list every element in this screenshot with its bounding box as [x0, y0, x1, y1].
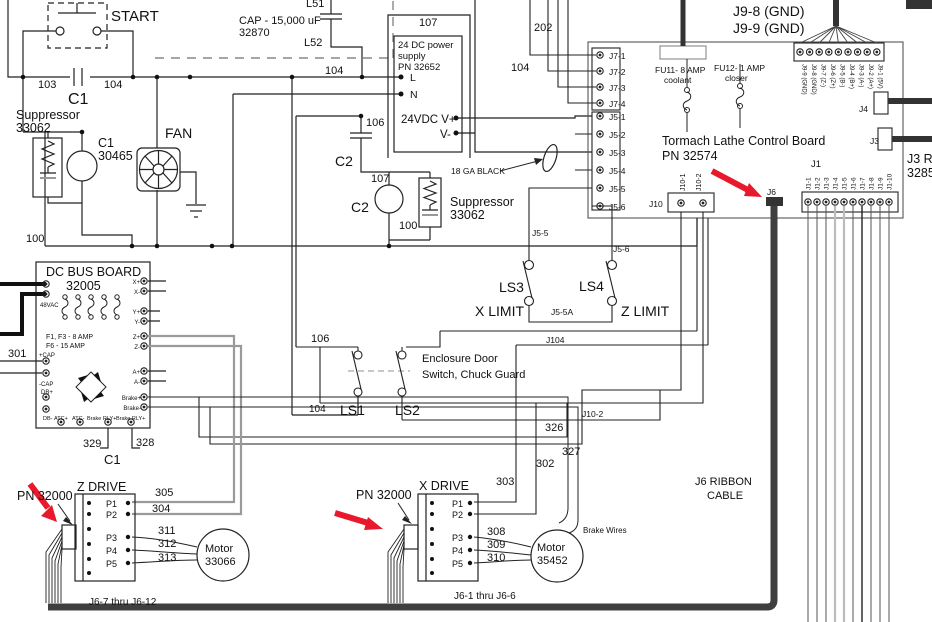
- ga-black-arrow: [500, 158, 543, 171]
- x-p2: P2: [452, 510, 463, 520]
- j5-2: J5-2: [609, 130, 626, 140]
- c2-coil-label: C2: [351, 199, 369, 215]
- wire-326: 326: [545, 422, 563, 434]
- suppressor2-pn: 33062: [450, 208, 485, 222]
- ps-vminus: V-: [440, 129, 451, 141]
- dcbus-brakeplus: Brake+: [122, 396, 142, 402]
- wire-j10-2: J10-2: [582, 409, 604, 419]
- dcbus-aminus: A-: [134, 380, 140, 386]
- dcbus-yplus: Y+: [132, 310, 140, 316]
- c1-coil-pn: 30465: [98, 149, 133, 163]
- dcbus-atcminus: ATC-: [72, 416, 85, 422]
- j9-8-pin: J9-8 (GND): [810, 64, 816, 95]
- wiring-schematic: START103104C1Suppressor33062C130465FAN10…: [0, 0, 932, 622]
- x-motor-pn: 35452: [537, 555, 568, 567]
- wire-106-b: 106: [311, 333, 329, 345]
- ground-symbol-icon: [186, 205, 206, 217]
- cap-bank-outline: [155, 0, 393, 58]
- j3-pn: 3285: [907, 166, 932, 180]
- dcbus-dbplus: DB+: [41, 390, 53, 396]
- j10-2-pin: J10-2: [696, 173, 703, 191]
- ps-terminal-n: N: [410, 89, 418, 101]
- red-arrow-z-drive: [41, 505, 57, 522]
- dcbus-48vac: 48VAC: [40, 303, 59, 309]
- c2-cap-label: C2: [335, 153, 353, 169]
- j7-3: J7-3: [609, 83, 626, 93]
- suppressor1-pn: 33062: [16, 121, 51, 135]
- j1-label: J1: [811, 159, 821, 170]
- wire-303: 303: [496, 476, 514, 488]
- j10-1-pin: J10-1: [680, 173, 687, 191]
- j9-5-pin: J9-5 (B-): [839, 64, 845, 87]
- j6-7-12-label: J6-7 thru J6-12: [89, 597, 157, 608]
- l52-label: L52: [304, 37, 322, 49]
- ps-pn: PN 32652: [398, 62, 440, 73]
- fu12-sub: closer: [725, 73, 748, 83]
- j4-label: J4: [859, 104, 868, 114]
- c1-coil-icon: [67, 151, 97, 181]
- j6-ribbon-2: CABLE: [707, 490, 743, 502]
- fan-label: FAN: [165, 125, 192, 141]
- j9-2-pin: J9-2 (A+): [867, 64, 873, 89]
- z-drive-label: Z DRIVE: [77, 480, 126, 494]
- dcbus-xplus: X+: [132, 280, 140, 286]
- dcbus-f6: F6 - 15 AMP: [46, 343, 85, 350]
- j9-1-pin: J9-1 (5V): [877, 64, 883, 89]
- wire-104-b: 104: [325, 65, 343, 77]
- dcbus-f1f3: F1, F3 - 8 AMP: [46, 334, 93, 341]
- wire-103: 103: [38, 79, 56, 91]
- x-p5: P5: [452, 559, 463, 569]
- c1-coil-name: C1: [98, 136, 114, 150]
- dcbus-fuse-icons: [62, 295, 120, 319]
- j1-5-pin: J1-5: [842, 177, 849, 190]
- wire-100-b: 100: [399, 220, 417, 232]
- z-p4: P4: [106, 546, 117, 556]
- j6-connector-icon: [766, 197, 783, 206]
- ls1-label: LS1: [340, 402, 365, 418]
- j1-6-pin: J1-6: [851, 177, 858, 190]
- wire-202: 202: [534, 22, 552, 34]
- schematic-page: START103104C1Suppressor33062C130465FAN10…: [0, 0, 932, 622]
- dcbus-pcap: +CAP: [39, 353, 55, 359]
- dcbus-atcplus: ATC+: [54, 416, 68, 422]
- dcbus-zplus: Z+: [133, 335, 141, 341]
- suppressor2-name: Suppressor: [450, 195, 514, 209]
- wire-100-a: 100: [26, 233, 44, 245]
- ga-black-label: 18 GA BLACK: [451, 166, 505, 176]
- wire-311: 311: [158, 525, 176, 537]
- j3-label: J3: [870, 136, 879, 146]
- start-contact-icon: [56, 27, 64, 35]
- x-drive-label: X DRIVE: [419, 479, 469, 493]
- j1-4-pin: J1-4: [833, 177, 840, 190]
- wire-309: 309: [487, 539, 505, 551]
- j9-6-pin: J9-6 (Z+): [829, 64, 835, 89]
- j9-8-gnd: J9-8 (GND): [733, 3, 805, 19]
- j7-2: J7-2: [609, 67, 626, 77]
- red-arrow-x-drive: [364, 517, 383, 530]
- x-p3: P3: [452, 533, 463, 543]
- z-axis-wires-304-305: [132, 336, 241, 514]
- wire-313: 313: [158, 552, 176, 564]
- x-pn32000: PN 32000: [356, 488, 412, 502]
- z-p1: P1: [106, 499, 117, 509]
- wire-308: 308: [487, 526, 505, 538]
- wire-104-c: 104: [511, 62, 529, 74]
- dcbus-zminus: Z-: [134, 345, 140, 351]
- wire-j5-6: J5-6: [613, 244, 630, 254]
- wire-329: 329: [83, 438, 101, 450]
- start-label: START: [111, 8, 159, 25]
- control-board: [529, 0, 903, 261]
- c1-bottom-label: C1: [104, 452, 121, 467]
- start-contact-icon: [93, 27, 101, 35]
- dcbus-dbminus: DB-: [43, 416, 53, 422]
- wire-j5-5a: J5-5A: [551, 307, 574, 317]
- j9-cable-bundle: [800, 0, 877, 43]
- dcbus-xminus: X-: [134, 290, 140, 296]
- j9-9-pin: J9-9 (GND): [801, 64, 807, 95]
- dcbus-brakerly1: Brake RLY+: [87, 416, 116, 422]
- j1-wires: [808, 206, 889, 622]
- z-motor-name: Motor: [205, 543, 233, 555]
- j7-4: J7-4: [609, 99, 626, 109]
- enclosure-1: Enclosure Door: [422, 353, 498, 365]
- wire-j5-5: J5-5: [532, 228, 549, 238]
- j3-r-label: J3 R: [907, 152, 932, 166]
- wire-104-d: 104: [309, 404, 326, 415]
- ls4-label: LS4: [579, 278, 604, 294]
- z-motor-pn: 33066: [205, 556, 236, 568]
- j10-label: J10: [649, 199, 663, 209]
- ps-terminal-l: L: [410, 72, 416, 84]
- suppressor1-name: Suppressor: [16, 108, 80, 122]
- board-pn: PN 32574: [662, 149, 718, 163]
- z-pn32000: PN 32000: [17, 489, 73, 503]
- z-p3: P3: [106, 533, 117, 543]
- ps-name-2: supply: [398, 51, 426, 62]
- suppressor2-box: [419, 178, 441, 227]
- fan-icon: [137, 148, 180, 191]
- j6-label: J6: [767, 187, 776, 197]
- ps-24vdc: 24VDC V+: [401, 114, 456, 126]
- dcbus-yminus: Y-: [135, 320, 140, 326]
- brake-wires-label: Brake Wires: [583, 526, 627, 535]
- wire-104-a: 104: [104, 79, 122, 91]
- j1-3-pin: J1-3: [824, 177, 831, 190]
- ls2-label: LS2: [395, 402, 420, 418]
- dcbus-aplus: A+: [132, 370, 140, 376]
- j9-4-pin: J9-4 (B+): [848, 64, 854, 89]
- j6-1-6-label: J6-1 thru J6-6: [454, 591, 516, 602]
- j5-5: J5-5: [609, 184, 626, 194]
- j5-1: J5-1: [609, 112, 626, 122]
- dcbus-brakerly2: Brake RLY+: [116, 416, 145, 422]
- wire-312: 312: [158, 538, 176, 550]
- j1-9-pin: J1-9: [878, 177, 885, 190]
- j9-7-pin: J9-7 (Z-): [820, 64, 826, 87]
- corner-cable: [906, 0, 932, 9]
- 48vac-power-cables: [0, 284, 46, 334]
- fu12-label: FU12- 1 AMP: [714, 63, 765, 73]
- ps-name-1: 24 DC power: [398, 40, 453, 51]
- cap-label: CAP - 15,000 uF: [239, 15, 321, 27]
- z-limit-label: Z LIMIT: [621, 303, 670, 319]
- j1-1-pin: J1-1: [806, 177, 813, 190]
- j5-6: J5-6: [609, 202, 626, 212]
- suppressor1-component: [33, 138, 62, 197]
- wire-107-a: 107: [419, 17, 437, 29]
- z-p5: P5: [106, 559, 117, 569]
- dcbus-name: DC BUS BOARD: [46, 265, 141, 279]
- l51-label: L51: [306, 0, 324, 10]
- cap-pn: 32870: [239, 27, 270, 39]
- x-p1: P1: [452, 499, 463, 509]
- wire-328: 328: [136, 437, 154, 449]
- wire-301: 301: [8, 348, 26, 360]
- j5-4: J5-4: [609, 166, 626, 176]
- j5-3: J5-3: [609, 148, 626, 158]
- ferrite-bead-icon: [540, 143, 560, 173]
- dcbus-ncap: -CAP: [39, 382, 53, 388]
- x-motor-name: Motor: [537, 542, 565, 554]
- j1-7-pin: J1-7: [860, 177, 867, 190]
- board-name: Tormach Lathe Control Board: [662, 134, 825, 148]
- fu11-sub: coolant: [664, 75, 692, 85]
- wire-305: 305: [155, 487, 173, 499]
- z-p2: P2: [106, 510, 117, 520]
- wire-107-b: 107: [371, 173, 389, 185]
- fu11-label: FU11- 8 AMP: [655, 65, 706, 75]
- c1-contact-label: C1: [68, 91, 89, 108]
- j1-2-pin: J1-2: [815, 177, 822, 190]
- dcbus-pn: 32005: [66, 279, 101, 293]
- j7-1: J7-1: [609, 51, 626, 61]
- j1-8-pin: J1-8: [869, 177, 876, 190]
- c2-coil-icon: [375, 185, 403, 213]
- dcbus-terminals: [43, 278, 147, 425]
- x-p4: P4: [452, 546, 463, 556]
- wire-302: 302: [536, 458, 554, 470]
- ls3-label: LS3: [499, 279, 524, 295]
- wire-327: 327: [562, 446, 580, 458]
- wire-106-a: 106: [366, 117, 384, 129]
- wire-304: 304: [152, 503, 170, 515]
- enclosure-2: Switch, Chuck Guard: [422, 369, 525, 381]
- j6-ribbon-1: J6 RIBBON: [695, 476, 752, 488]
- dcbus-brakeminus: Brake-: [123, 406, 141, 412]
- x-limit-label: X LIMIT: [475, 303, 524, 319]
- j9-9-gnd: J9-9 (GND): [733, 20, 805, 36]
- wire-j104: J104: [546, 335, 565, 345]
- j1-10-pin: J1-10: [887, 173, 894, 190]
- wire-310: 310: [487, 552, 505, 564]
- red-arrow-j6: [744, 183, 762, 197]
- bridge-rectifier-icon: [78, 372, 104, 402]
- j9-3-pin: J9-3 (A-): [858, 64, 864, 87]
